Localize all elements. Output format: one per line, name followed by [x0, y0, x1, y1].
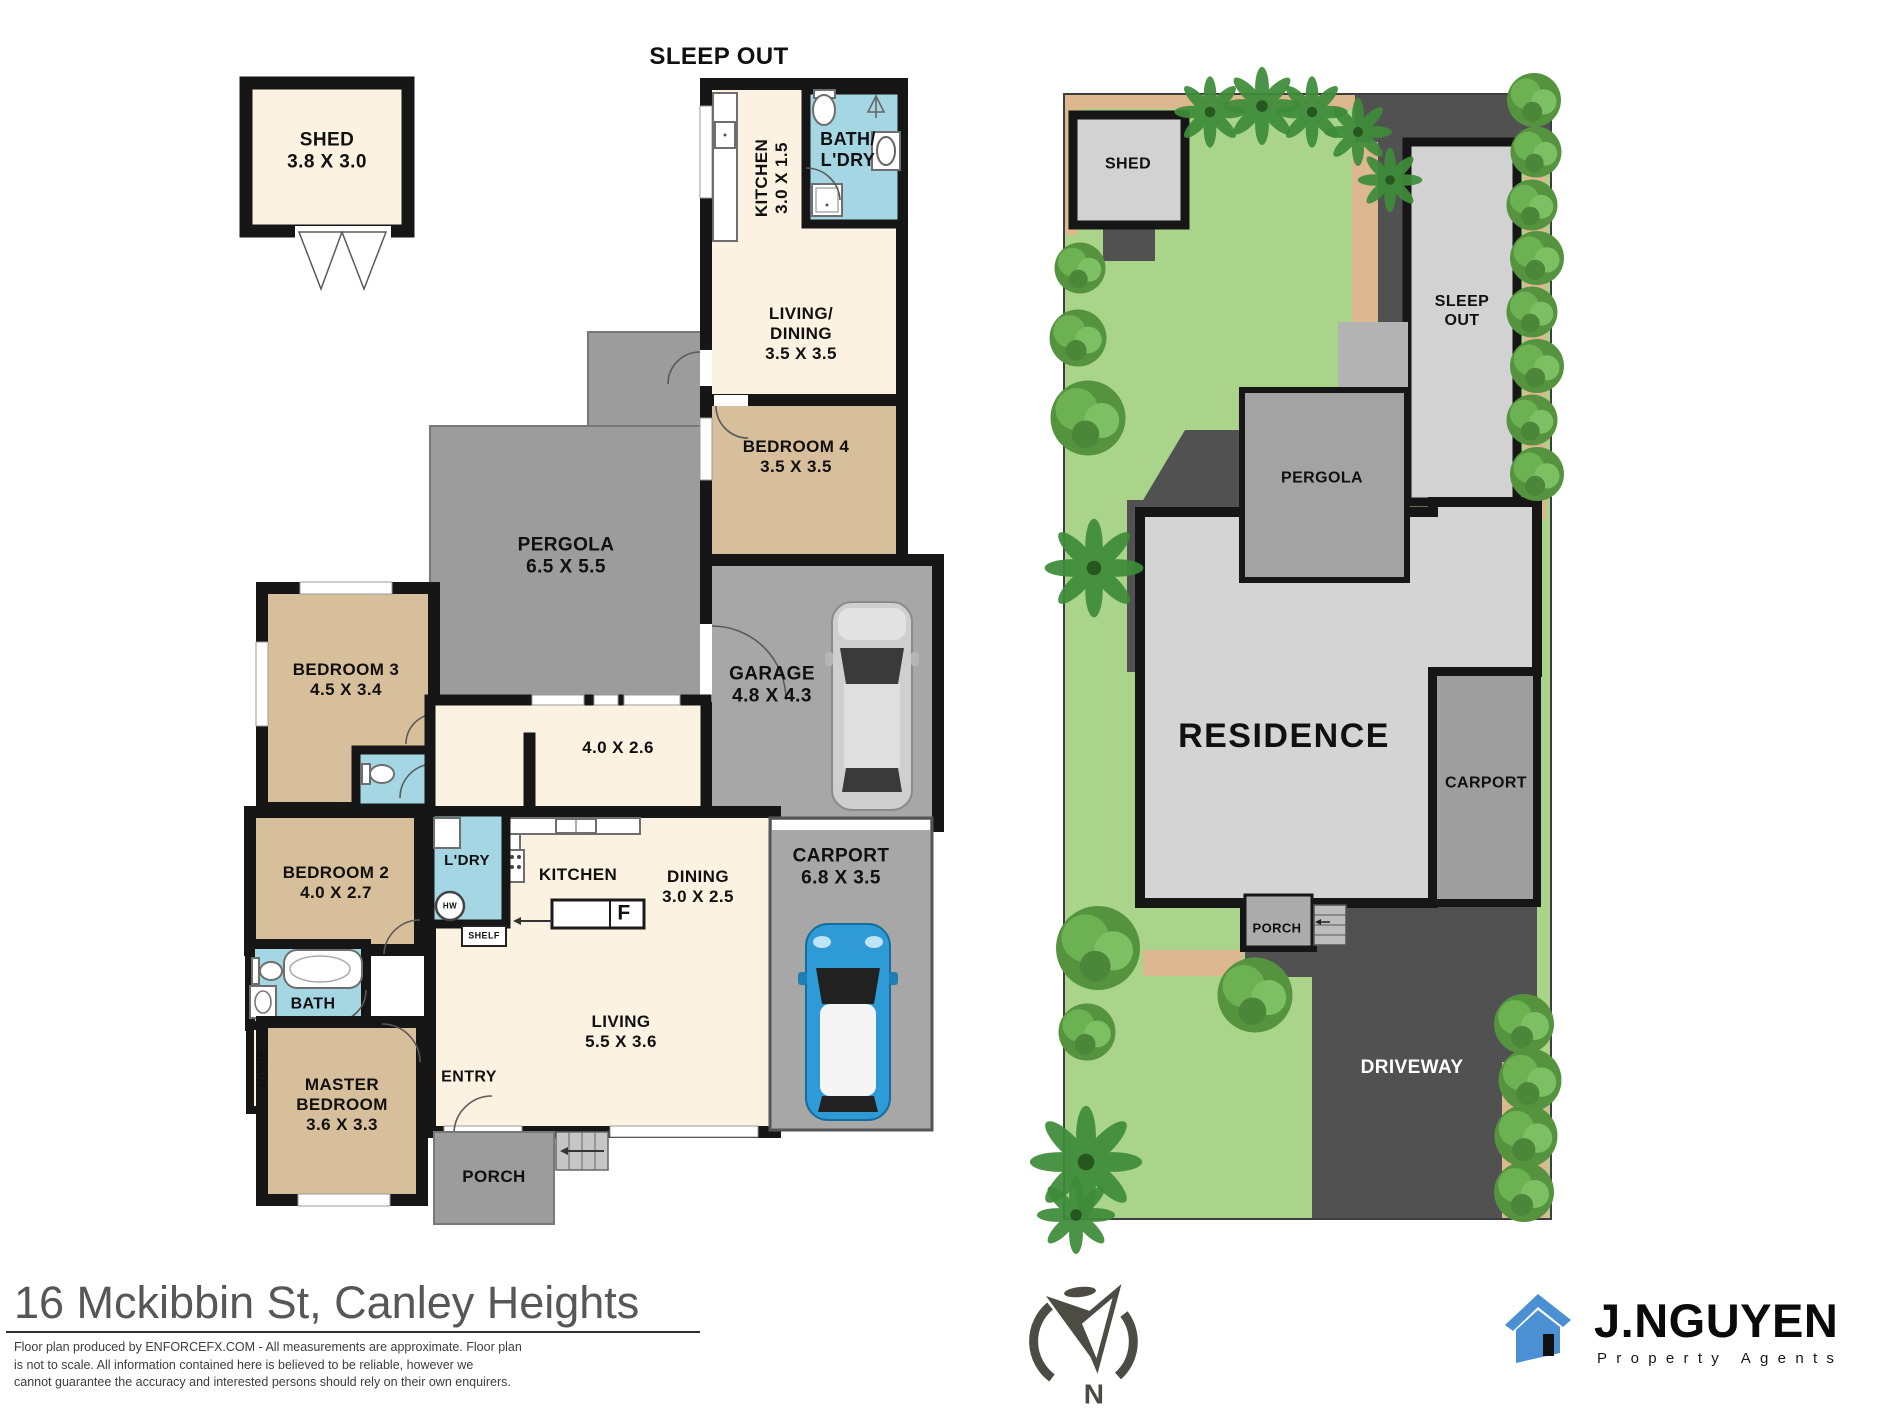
bath-room — [250, 944, 366, 1026]
floor-plan — [246, 83, 938, 1224]
site-annex — [1338, 322, 1408, 392]
bedroom4-room — [700, 395, 902, 564]
wc-room — [356, 750, 434, 808]
porch-area — [434, 1132, 608, 1224]
floorplan-page: SLEEP OUT SHED3.8 X 3.0 KITCHEN3.0 X 1.5… — [0, 0, 1900, 1425]
sleepout-building — [668, 84, 902, 414]
site-stairs — [1314, 905, 1346, 945]
pergola-area — [430, 332, 706, 702]
site-plan — [1030, 67, 1564, 1254]
site-pergola — [1242, 390, 1407, 580]
laundry-room — [430, 812, 506, 946]
family-room — [430, 695, 706, 818]
logo-house-icon — [1505, 1294, 1571, 1363]
shed-room — [246, 83, 408, 289]
sleepout-bath-room — [806, 90, 902, 224]
carport-car — [798, 924, 898, 1120]
carport-area — [770, 818, 932, 1130]
garage-room — [700, 560, 938, 826]
site-carport — [1433, 672, 1537, 903]
master-bedroom-room — [262, 1022, 422, 1206]
garage-car — [825, 602, 919, 810]
plan-graphics — [0, 0, 1900, 1425]
site-shed — [1073, 115, 1185, 225]
compass-icon — [1034, 1285, 1134, 1378]
site-sleepout — [1407, 142, 1517, 502]
bedroom2-room — [250, 812, 420, 954]
site-porch — [1245, 895, 1312, 947]
